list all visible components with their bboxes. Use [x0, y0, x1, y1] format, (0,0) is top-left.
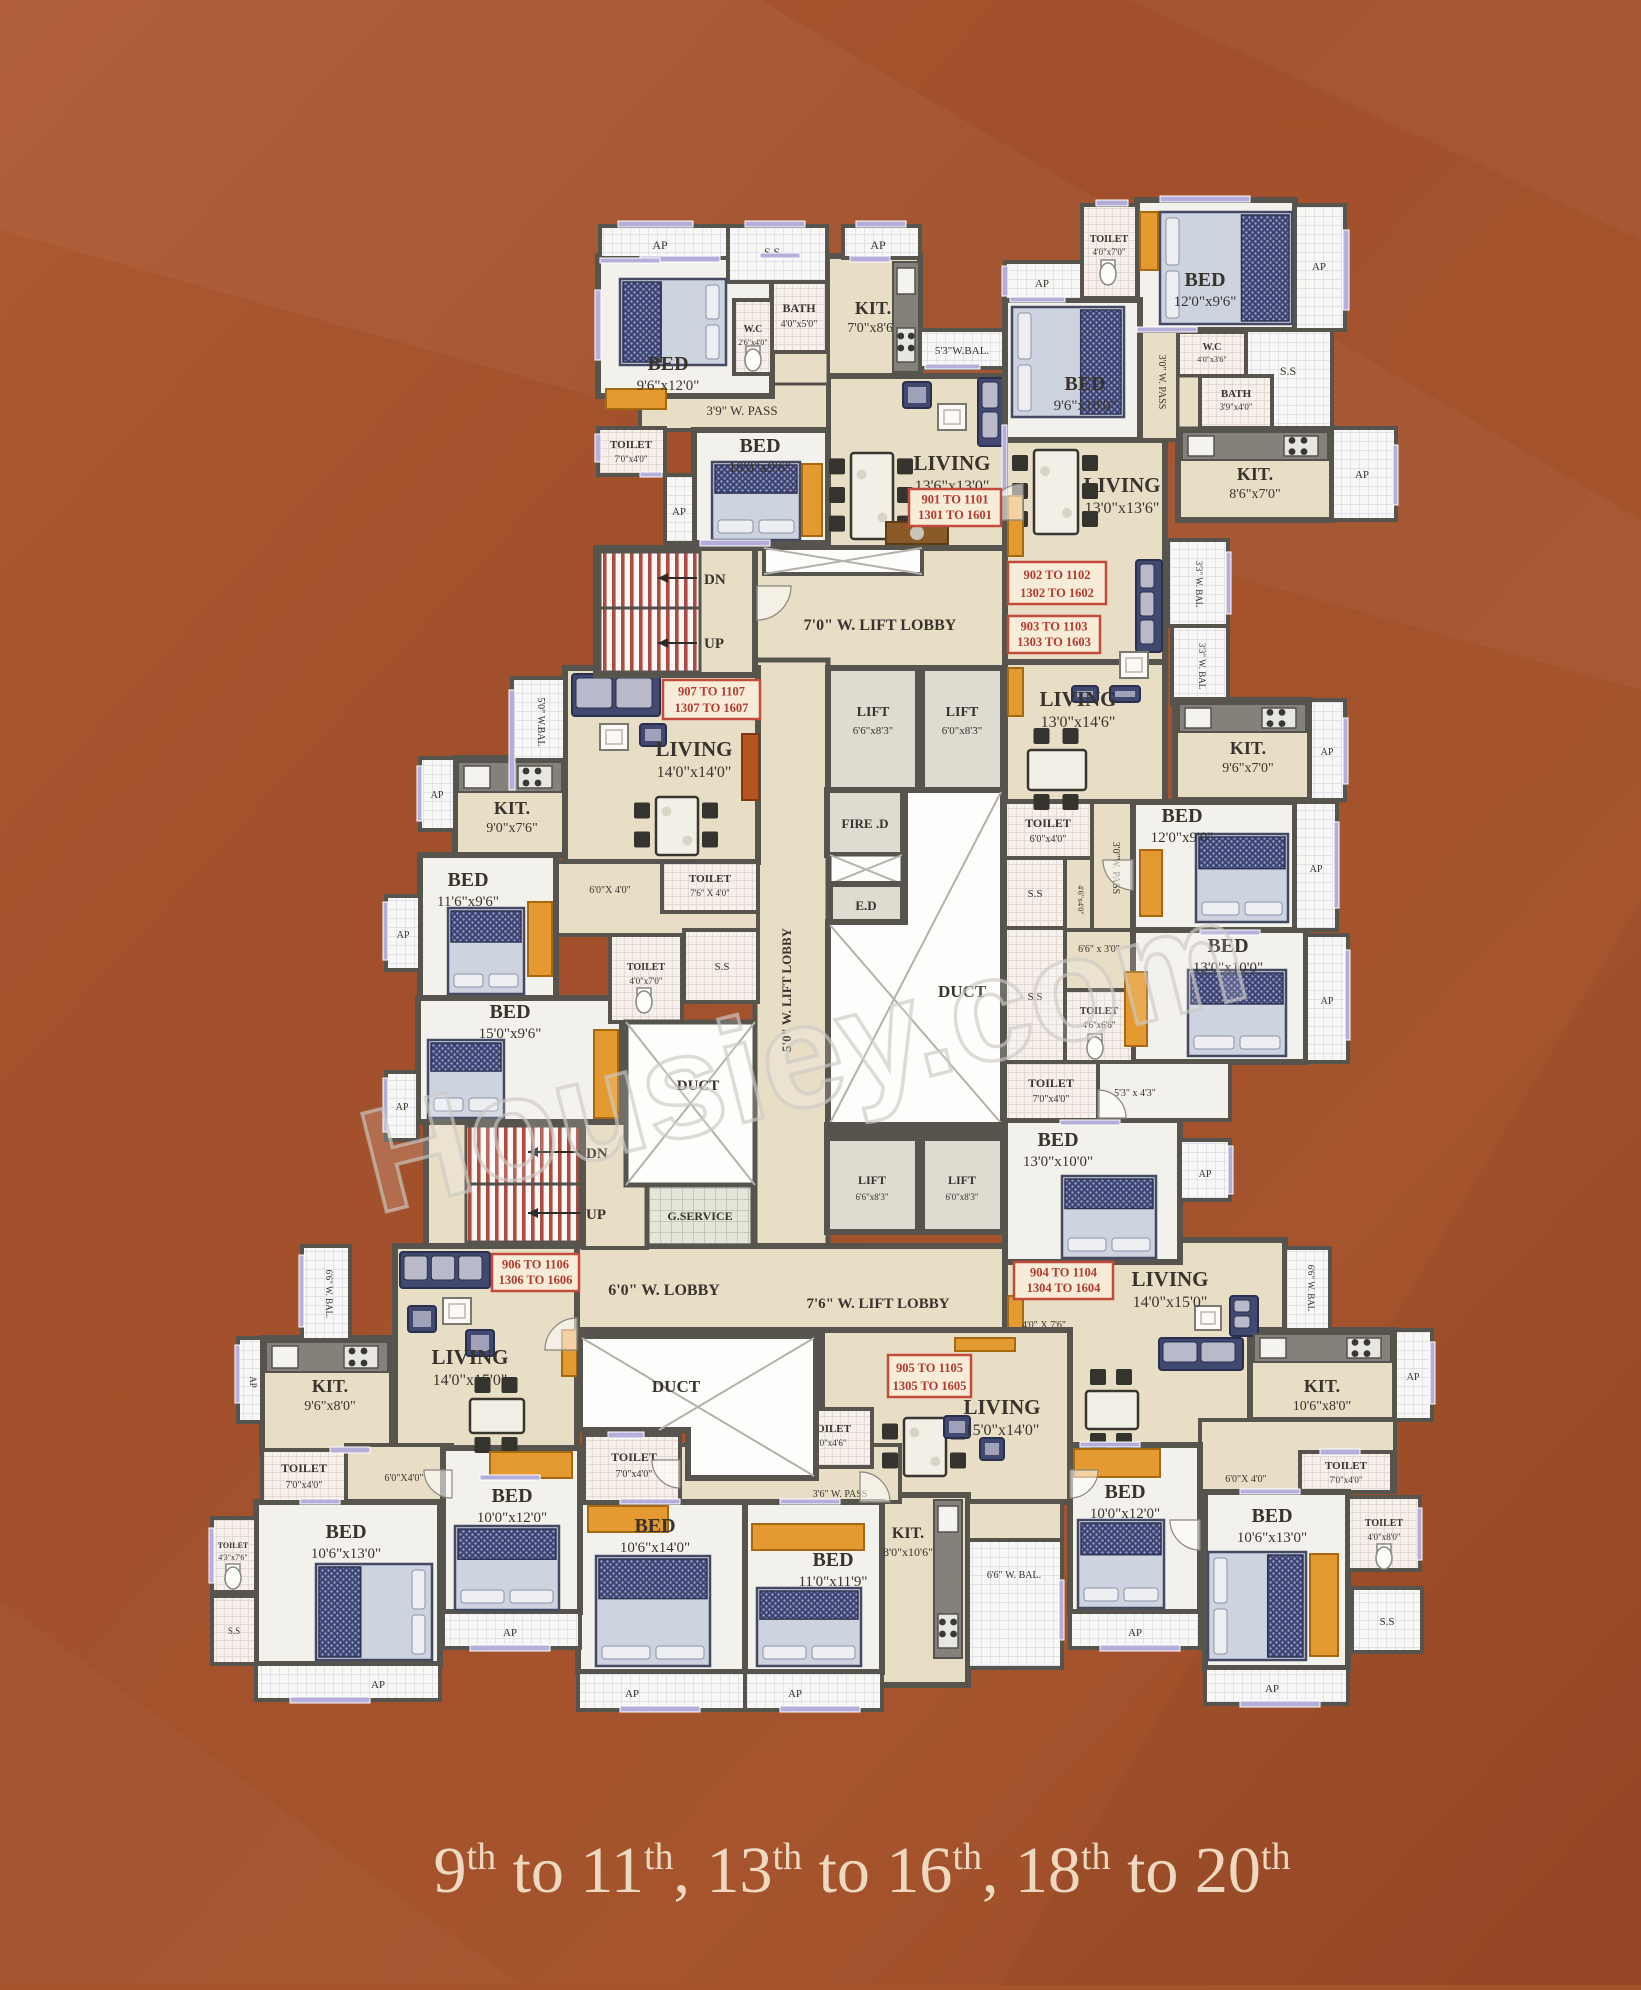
svg-text:AP: AP — [870, 238, 886, 252]
svg-text:S.S: S.S — [1380, 1616, 1395, 1628]
svg-text:S.S: S.S — [228, 1626, 240, 1636]
svg-text:BED: BED — [812, 1549, 853, 1571]
svg-text:KIT.: KIT. — [892, 1525, 924, 1542]
svg-text:907 TO 1107: 907 TO 1107 — [678, 685, 745, 699]
svg-text:5'0" W.BAL: 5'0" W.BAL — [535, 697, 546, 746]
svg-text:7'0"x4'0": 7'0"x4'0" — [616, 1469, 653, 1480]
svg-text:LIVING: LIVING — [913, 451, 990, 475]
svg-text:TOILET: TOILET — [611, 1450, 657, 1464]
svg-text:4'3"x7'6": 4'3"x7'6" — [218, 1553, 247, 1562]
svg-text:G.SERVICE: G.SERVICE — [667, 1209, 732, 1223]
svg-text:4'0"x7'0": 4'0"x7'0" — [629, 976, 662, 986]
svg-text:AP: AP — [788, 1688, 802, 1700]
svg-text:DN: DN — [704, 572, 726, 588]
svg-text:1302 TO 1602: 1302 TO 1602 — [1020, 586, 1094, 600]
svg-text:10'0"x12'0": 10'0"x12'0" — [1090, 1506, 1160, 1522]
svg-text:TOILET: TOILET — [610, 439, 653, 451]
svg-text:10'6"x13'0": 10'6"x13'0" — [311, 1546, 381, 1562]
svg-text:902 TO 1102: 902 TO 1102 — [1024, 568, 1091, 582]
svg-text:4'0"x8'0": 4'0"x8'0" — [1367, 1532, 1400, 1542]
svg-text:13'0"x13'6": 13'0"x13'6" — [1085, 500, 1160, 517]
svg-text:3'9"x4'0": 3'9"x4'0" — [1219, 402, 1252, 412]
svg-text:7'0"x8'6": 7'0"x8'6" — [847, 321, 898, 336]
svg-text:10'0"x9'6": 10'0"x9'6" — [729, 460, 792, 476]
svg-text:LIVING: LIVING — [431, 1345, 508, 1369]
svg-text:3'3" W. BAL: 3'3" W. BAL — [1197, 643, 1207, 690]
svg-text:LIVING: LIVING — [1131, 1267, 1208, 1291]
svg-text:AP: AP — [1199, 1169, 1212, 1180]
svg-text:1306 TO 1606: 1306 TO 1606 — [499, 1273, 573, 1287]
svg-text:6'6"x8'3": 6'6"x8'3" — [853, 725, 893, 737]
svg-text:9'6"x12'0": 9'6"x12'0" — [637, 378, 700, 394]
svg-text:AP: AP — [1035, 278, 1049, 290]
svg-text:BATH: BATH — [782, 301, 816, 315]
svg-text:1305 TO 1605: 1305 TO 1605 — [893, 1379, 967, 1393]
svg-text:7'6" X 4'0": 7'6" X 4'0" — [690, 888, 730, 898]
svg-text:AP: AP — [1128, 1627, 1142, 1639]
svg-text:14'0"x15'0": 14'0"x15'0" — [433, 1372, 508, 1389]
svg-text:6'0"x8'3": 6'0"x8'3" — [945, 1192, 978, 1202]
svg-text:TOILET: TOILET — [627, 962, 665, 973]
svg-text:1304 TO 1604: 1304 TO 1604 — [1027, 1281, 1102, 1295]
svg-text:10'0"x12'0": 10'0"x12'0" — [477, 1510, 547, 1526]
svg-text:1307 TO 1607: 1307 TO 1607 — [675, 701, 749, 715]
svg-text:8'6"x7'0": 8'6"x7'0" — [1229, 487, 1280, 502]
svg-text:6'0"X4'0": 6'0"X4'0" — [385, 1473, 424, 1484]
svg-text:11'6"x9'6": 11'6"x9'6" — [437, 894, 499, 910]
svg-text:S.S: S.S — [1028, 888, 1043, 900]
svg-text:FIRE .D: FIRE .D — [842, 816, 889, 831]
svg-text:4'0"x3'6": 4'0"x3'6" — [1197, 355, 1226, 364]
svg-text:LIVING: LIVING — [1039, 687, 1116, 711]
svg-text:AP: AP — [1355, 469, 1369, 481]
svg-text:BED: BED — [1184, 269, 1225, 291]
svg-text:6'6"x8'3": 6'6"x8'3" — [855, 1192, 888, 1202]
svg-text:UP: UP — [704, 636, 724, 652]
svg-text:AP: AP — [672, 506, 686, 518]
svg-text:1301 TO 1601: 1301 TO 1601 — [918, 508, 992, 522]
svg-text:6'0"x8'3": 6'0"x8'3" — [942, 725, 982, 737]
svg-text:BED: BED — [1161, 805, 1202, 827]
svg-text:AP: AP — [1265, 1683, 1279, 1695]
svg-text:KIT.: KIT. — [1230, 738, 1266, 758]
svg-text:7'0"x4'0": 7'0"x4'0" — [1033, 1094, 1070, 1105]
svg-text:7'0"x4'0": 7'0"x4'0" — [614, 454, 647, 464]
svg-text:9'0"x7'6": 9'0"x7'6" — [486, 821, 537, 836]
svg-text:7'0"x4'0": 7'0"x4'0" — [286, 1480, 323, 1491]
svg-text:BATH: BATH — [1221, 388, 1252, 400]
svg-text:13'0"x10'0": 13'0"x10'0" — [1023, 1154, 1093, 1170]
svg-text:12'0"x9'6": 12'0"x9'6" — [1174, 294, 1237, 310]
svg-text:6'6" W. BAL: 6'6" W. BAL — [1306, 1265, 1316, 1312]
svg-text:BED: BED — [739, 435, 780, 457]
svg-text:9'6"x7'0": 9'6"x7'0" — [1222, 761, 1273, 776]
svg-text:5'3"W.BAL.: 5'3"W.BAL. — [935, 345, 990, 357]
svg-text:KIT.: KIT. — [1304, 1376, 1340, 1396]
svg-text:BED: BED — [647, 353, 688, 375]
svg-text:BED: BED — [325, 1521, 366, 1543]
svg-text:LIVING: LIVING — [963, 1395, 1040, 1419]
svg-text:14'0"x14'0": 14'0"x14'0" — [657, 764, 732, 781]
svg-text:AP: AP — [1321, 996, 1334, 1007]
svg-text:TOILET: TOILET — [281, 1461, 327, 1475]
svg-text:TOILET: TOILET — [1365, 1518, 1403, 1529]
svg-text:AP: AP — [1312, 261, 1326, 273]
svg-text:BED: BED — [1251, 1505, 1292, 1527]
svg-text:6'0"x4'0": 6'0"x4'0" — [1030, 834, 1067, 845]
svg-text:DUCT: DUCT — [652, 1377, 701, 1396]
svg-text:6'0"X 4'0": 6'0"X 4'0" — [1225, 1474, 1267, 1485]
svg-text:TOILET: TOILET — [1325, 1460, 1368, 1472]
svg-text:10'6"x8'0": 10'6"x8'0" — [1293, 1399, 1351, 1414]
svg-text:BED: BED — [1037, 1129, 1078, 1151]
svg-text:7'0" W. LIFT LOBBY: 7'0" W. LIFT LOBBY — [804, 617, 957, 634]
svg-text:AP: AP — [1321, 747, 1334, 758]
svg-text:LIFT: LIFT — [946, 705, 979, 720]
svg-text:BED: BED — [1104, 1481, 1145, 1503]
svg-text:AP: AP — [431, 790, 444, 801]
svg-text:3'9" W. PASS: 3'9" W. PASS — [706, 403, 777, 418]
svg-text:6'0" W. LOBBY: 6'0" W. LOBBY — [608, 1282, 720, 1299]
svg-text:LIVING: LIVING — [655, 737, 732, 761]
svg-text:KIT.: KIT. — [855, 298, 891, 318]
svg-text:5'3" x 4'3": 5'3" x 4'3" — [1114, 1088, 1156, 1099]
svg-text:TOILET: TOILET — [689, 873, 732, 885]
svg-text:W.C: W.C — [1203, 342, 1222, 353]
svg-text:TOILET: TOILET — [218, 1541, 249, 1550]
svg-text:S.S: S.S — [715, 961, 730, 973]
svg-text:3'0" W. PASS: 3'0" W. PASS — [1156, 355, 1167, 410]
svg-text:905 TO 1105: 905 TO 1105 — [896, 1361, 963, 1375]
svg-text:7'0"x4'0": 7'0"x4'0" — [1329, 1475, 1362, 1485]
svg-text:TOILET: TOILET — [1090, 234, 1128, 245]
svg-text:LIFT: LIFT — [858, 1173, 886, 1187]
svg-text:AP: AP — [248, 1376, 258, 1388]
svg-text:4'0"x5'0": 4'0"x5'0" — [781, 319, 818, 330]
svg-text:14'0"x15'0": 14'0"x15'0" — [1133, 1294, 1208, 1311]
svg-text:4'0"x7'0": 4'0"x7'0" — [1092, 247, 1125, 257]
svg-text:S.S: S.S — [1280, 364, 1296, 378]
svg-text:LIVING: LIVING — [1083, 473, 1160, 497]
svg-text:AP: AP — [625, 1688, 639, 1700]
svg-text:AP: AP — [1310, 864, 1323, 875]
svg-text:LIFT: LIFT — [857, 705, 890, 720]
svg-text:BED: BED — [1064, 373, 1105, 395]
svg-text:AP: AP — [397, 930, 410, 941]
svg-text:AP: AP — [371, 1679, 385, 1691]
svg-text:9'6"x8'0": 9'6"x8'0" — [304, 1399, 355, 1414]
svg-text:BED: BED — [447, 869, 488, 891]
svg-text:AP: AP — [503, 1627, 517, 1639]
svg-text:3'3" W. BAL: 3'3" W. BAL — [1194, 561, 1204, 608]
svg-text:15'0"x14'0": 15'0"x14'0" — [965, 1422, 1040, 1439]
svg-text:1303 TO 1603: 1303 TO 1603 — [1017, 635, 1091, 649]
svg-text:10'6"x13'0": 10'6"x13'0" — [1237, 1530, 1307, 1546]
svg-text:UP: UP — [586, 1207, 606, 1223]
svg-text:W.C: W.C — [744, 324, 763, 335]
svg-text:906 TO 1106: 906 TO 1106 — [502, 1258, 569, 1272]
svg-text:BED: BED — [491, 1485, 532, 1507]
svg-text:E.D: E.D — [855, 898, 876, 913]
svg-text:KIT.: KIT. — [312, 1376, 348, 1396]
svg-text:AP: AP — [1407, 1372, 1420, 1383]
svg-text:TOILET: TOILET — [1025, 816, 1071, 830]
svg-text:9'6"x10'0": 9'6"x10'0" — [1054, 398, 1117, 414]
svg-text:12'0"x9'0": 12'0"x9'0" — [1151, 830, 1214, 846]
svg-text:11'0"x11'9": 11'0"x11'9" — [798, 1574, 867, 1590]
svg-text:KIT.: KIT. — [494, 798, 530, 818]
svg-text:BED: BED — [489, 1001, 530, 1023]
svg-text:10'6"x14'0": 10'6"x14'0" — [620, 1540, 690, 1556]
svg-text:904 TO 1104: 904 TO 1104 — [1030, 1266, 1098, 1280]
svg-text:901 TO 1101: 901 TO 1101 — [922, 493, 989, 507]
svg-text:LIFT: LIFT — [948, 1173, 976, 1187]
svg-text:KIT.: KIT. — [1237, 464, 1273, 484]
svg-text:7'6" W. LIFT LOBBY: 7'6" W. LIFT LOBBY — [806, 1296, 949, 1312]
svg-text:6'6" W. BAL.: 6'6" W. BAL. — [987, 1570, 1041, 1581]
svg-text:8'0"x10'6": 8'0"x10'6" — [883, 1545, 933, 1559]
svg-text:6'0"X 4'0": 6'0"X 4'0" — [589, 885, 631, 896]
svg-text:9th to 11th, 13th to 16th, 18t: 9th to 11th, 13th to 16th, 18th to 20th — [434, 1834, 1291, 1907]
svg-text:BED: BED — [634, 1515, 675, 1537]
svg-text:903 TO 1103: 903 TO 1103 — [1021, 620, 1088, 634]
svg-text:3'6" W. PASS: 3'6" W. PASS — [813, 1489, 868, 1500]
svg-text:AP: AP — [652, 238, 668, 252]
svg-text:6'6" W. BAL.: 6'6" W. BAL. — [324, 1270, 334, 1319]
svg-text:13'0"x14'6": 13'0"x14'6" — [1041, 714, 1116, 731]
